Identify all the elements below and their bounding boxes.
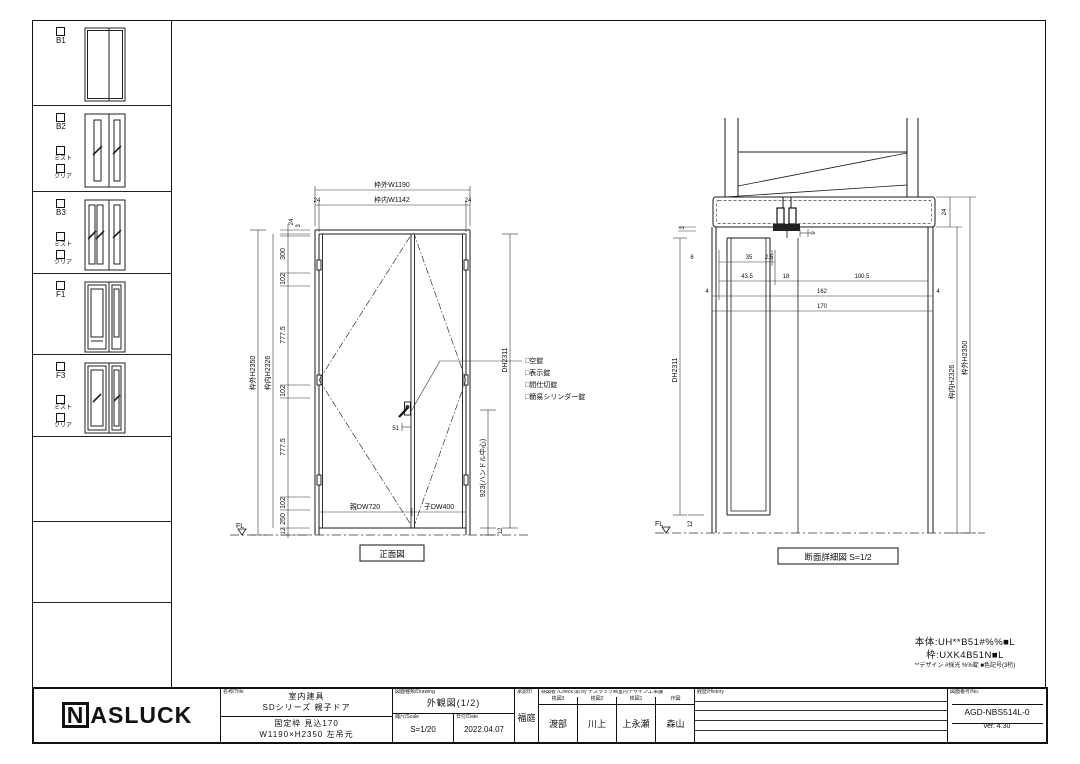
- drawing-label: 図面種類/Drawing: [395, 690, 435, 695]
- dim-chain-102: 102: [280, 385, 287, 397]
- option-checkbox-clear: [56, 250, 65, 259]
- section-view-title: 断面詳細図 S=1/2: [804, 552, 872, 562]
- check-label: 検図者 /Check up by ナスラック㈱室内デザイン工事課: [541, 690, 693, 695]
- name-cell: 名称/Title 室内建具 SDシリーズ 親子ドア 固定枠 見込170 W119…: [220, 689, 392, 742]
- note-legend: **デザイン #採光 %%錠 ■色記号(3桁): [872, 662, 1058, 671]
- right-dimensions: [402, 234, 518, 535]
- dim-handle-center: 923(ハンドル中心): [478, 439, 487, 497]
- drawing-number: AGD-NBS514L-0: [948, 707, 1046, 717]
- variant-row-f3: F3 ミスト クリア: [32, 355, 171, 437]
- approval-name: 福庭: [515, 711, 538, 724]
- option-label-clear: クリア: [54, 174, 72, 180]
- title-block: NASLUCK 名称/Title 室内建具 SDシリーズ 親子ドア 固定枠 見込…: [32, 687, 1048, 744]
- check-cell: 検図者 /Check up by ナスラック㈱室内デザイン工事課 検図3 検図2…: [538, 689, 694, 742]
- dim-9: 9: [811, 231, 817, 235]
- check-role-2: 検図2: [578, 697, 617, 705]
- option-checkbox-mist: [56, 146, 65, 155]
- name-line1: 室内建具: [221, 691, 392, 702]
- dim-frame-inner-width: 枠内W1142: [374, 195, 410, 204]
- check-role-4: 作図: [656, 697, 695, 705]
- variant-thumbnail-b1: [84, 27, 128, 103]
- lock-option: □間仕切錠: [525, 380, 557, 389]
- checker-name: 渡部: [539, 705, 578, 742]
- dim-chain-777: 777.5: [280, 438, 287, 456]
- option-label-mist: ミスト: [54, 242, 72, 248]
- variant-label: F3: [56, 372, 65, 380]
- door-leaves: [319, 234, 466, 528]
- check-role-1: 検図3: [539, 697, 578, 705]
- section-view-title-box: 断面詳細図 S=1/2: [778, 548, 898, 564]
- drawing-sheet: B1 B2 ミスト クリア: [0, 0, 1080, 764]
- variant-sidebar: B1 B2 ミスト クリア: [32, 20, 172, 687]
- dim-chain-250: 250: [280, 513, 287, 525]
- option-label-mist: ミスト: [54, 156, 72, 162]
- dim-chain-102: 102: [280, 273, 287, 285]
- checker-name: 上永瀬: [617, 705, 656, 742]
- check-role-3: 検図1: [617, 697, 656, 705]
- dim-162: 162: [817, 289, 828, 295]
- dim-100_5: 100.5: [854, 274, 870, 280]
- variant-checkbox-f3: [56, 362, 65, 371]
- drawing-name: 外観図(1/2): [393, 696, 514, 709]
- dim-12-right: 12: [498, 527, 504, 534]
- dim-door-height: DH2311: [502, 347, 509, 372]
- variant-row-empty-3: [32, 603, 171, 687]
- dim-handle-offset: 51: [392, 426, 399, 432]
- product-code-notes: 本体:UH**B51#%%■L 枠:UXK4B51N■L **デザイン #採光 …: [872, 636, 1058, 671]
- dim-24: 24: [942, 208, 948, 215]
- dim-child-leaf-width: 子DW400: [424, 503, 454, 511]
- scale-cell: 縮尺/Scale S=1/20: [393, 714, 454, 743]
- variant-label: B2: [56, 123, 66, 131]
- variant-checkbox-f1: [56, 281, 65, 290]
- date-label: 日付/Date: [456, 715, 478, 720]
- scale-label: 縮尺/Scale: [395, 715, 419, 720]
- dim-chain-24: 24: [289, 218, 295, 225]
- option-checkbox-clear: [56, 164, 65, 173]
- approval-cell: 承認印 福庭: [514, 689, 538, 742]
- variant-row-empty-1: [32, 437, 171, 522]
- lock-option: □空錠: [525, 356, 543, 365]
- dim-frame-inner-height: 枠内H2326: [947, 365, 956, 400]
- number-cell: 図面番号/No. AGD-NBS514L-0 ver. 4.30: [947, 689, 1046, 742]
- door-frame: [315, 230, 470, 535]
- lock-option: □簡易シリンダー錠: [525, 392, 585, 401]
- variant-thumbnail-f1: [84, 281, 128, 355]
- lock-option-list: □空錠 □表示錠 □間仕切錠 □簡易シリンダー錠: [525, 356, 585, 401]
- dim-frame-inner-height: 枠内H2326: [263, 356, 272, 391]
- dim-43_5: 43.5: [741, 274, 753, 280]
- dim-170: 170: [817, 304, 828, 310]
- lock-option: □表示錠: [525, 368, 550, 377]
- history-row-line: [695, 730, 947, 731]
- variant-label: B3: [56, 209, 66, 217]
- variant-row-b3: B3 ミスト クリア: [32, 192, 171, 274]
- left-dim-chain: [250, 224, 310, 538]
- front-view-drawing: FL 枠外W1190 24 枠内W1142 24 24 3 300 102 77…: [230, 160, 620, 570]
- dim-24-left: 24: [314, 198, 321, 204]
- note-body-code: 本体:UH**B51#%%■L: [872, 636, 1058, 649]
- drawing-cell: 図面種類/Drawing 外観図(1/2) 縮尺/Scale S=1/20 日付…: [392, 689, 514, 742]
- dim-35: 35: [746, 255, 753, 261]
- name-line2: SDシリーズ 親子ドア: [221, 702, 392, 713]
- variant-row-b1: B1: [32, 20, 171, 106]
- option-checkbox-mist: [56, 395, 65, 404]
- fl-marker: FL: [236, 523, 246, 535]
- history-row-line: [695, 710, 947, 711]
- dim-frame-outer-width: 枠外W1190: [374, 180, 410, 189]
- variant-checkbox-b2: [56, 113, 65, 122]
- section-view-drawing: FL 12 3 9 6 35 2.5 43.5 18 100.5 4: [650, 100, 990, 570]
- front-view-title: 正面図: [379, 549, 405, 559]
- dim-3: 3: [680, 226, 686, 230]
- dim-6: 6: [690, 255, 694, 261]
- lever-handle: [399, 402, 411, 417]
- option-checkbox-clear: [56, 413, 65, 422]
- variant-label: F1: [56, 291, 65, 299]
- dim-4-left: 4: [705, 289, 709, 295]
- dim-chain-300: 300: [280, 248, 287, 260]
- history-row-line: [695, 701, 947, 702]
- dim-2_5: 2.5: [765, 255, 774, 261]
- fl-marker: FL: [655, 515, 704, 533]
- variant-row-empty-2: [32, 522, 171, 603]
- variant-thumbnail-b3: [84, 199, 128, 273]
- dim-4-right: 4: [936, 289, 940, 295]
- naslock-logo: NASLUCK: [62, 702, 192, 729]
- checker-name: 川上: [578, 705, 617, 742]
- front-view-title-box: 正面図: [360, 545, 424, 561]
- date-value: 2022.04.07: [454, 725, 514, 734]
- variant-row-f1: F1: [32, 274, 171, 355]
- pivot-bracket: [773, 197, 800, 238]
- dim-door-height: DH2311: [672, 357, 679, 382]
- approval-label: 承認印: [517, 690, 532, 695]
- variant-thumbnail-f3: [84, 362, 128, 436]
- note-frame-code: 枠:UXK4B51N■L: [872, 649, 1058, 662]
- history-label: 経歴/History: [697, 690, 724, 695]
- history-row-line: [695, 720, 947, 721]
- spec-line2: W1190×H2350 左吊元: [221, 729, 392, 740]
- option-label-clear: クリア: [54, 423, 72, 429]
- history-cell: 経歴/History: [694, 689, 947, 742]
- variant-checkbox-b3: [56, 199, 65, 208]
- number-label: 図面番号/No.: [950, 690, 979, 695]
- hinge-marks: [317, 260, 468, 485]
- section-verticals: [712, 227, 933, 533]
- variant-checkbox-b1: [56, 27, 65, 36]
- dim-chain-3: 3: [296, 224, 302, 228]
- variant-label: B1: [56, 37, 66, 45]
- checker-name: 森山: [656, 705, 695, 742]
- swing-marks: [319, 235, 466, 525]
- option-label-clear: クリア: [54, 260, 72, 266]
- top-dimensions: [315, 186, 470, 232]
- drawing-version: ver. 4.30: [948, 723, 1046, 730]
- section-right-dims: [673, 197, 976, 533]
- dim-chain-12: 12: [281, 527, 287, 534]
- dim-chain-102: 102: [280, 497, 287, 509]
- dim-24-right: 24: [465, 198, 472, 204]
- dim-18: 18: [783, 274, 790, 280]
- dim-parent-leaf-width: 親DW720: [350, 502, 380, 511]
- dim-chain-777: 777.5: [280, 326, 287, 344]
- spec-line1: 固定枠 見込170: [221, 718, 392, 729]
- wall-framing: [725, 118, 918, 197]
- dim-12: 12: [688, 520, 694, 527]
- dim-frame-outer-height: 枠外H2350: [248, 356, 257, 391]
- variant-row-b2: B2 ミスト クリア: [32, 106, 171, 192]
- logo-cell: NASLUCK: [34, 689, 220, 742]
- date-cell: 日付/Date 2022.04.07: [454, 714, 514, 743]
- option-label-mist: ミスト: [54, 405, 72, 411]
- name-label: 名称/Title: [223, 690, 244, 695]
- option-checkbox-mist: [56, 232, 65, 241]
- variant-thumbnail-b2: [84, 113, 128, 189]
- dim-frame-outer-height: 枠外H2350: [960, 341, 969, 376]
- scale-value: S=1/20: [393, 725, 453, 734]
- frame-head: [713, 197, 935, 227]
